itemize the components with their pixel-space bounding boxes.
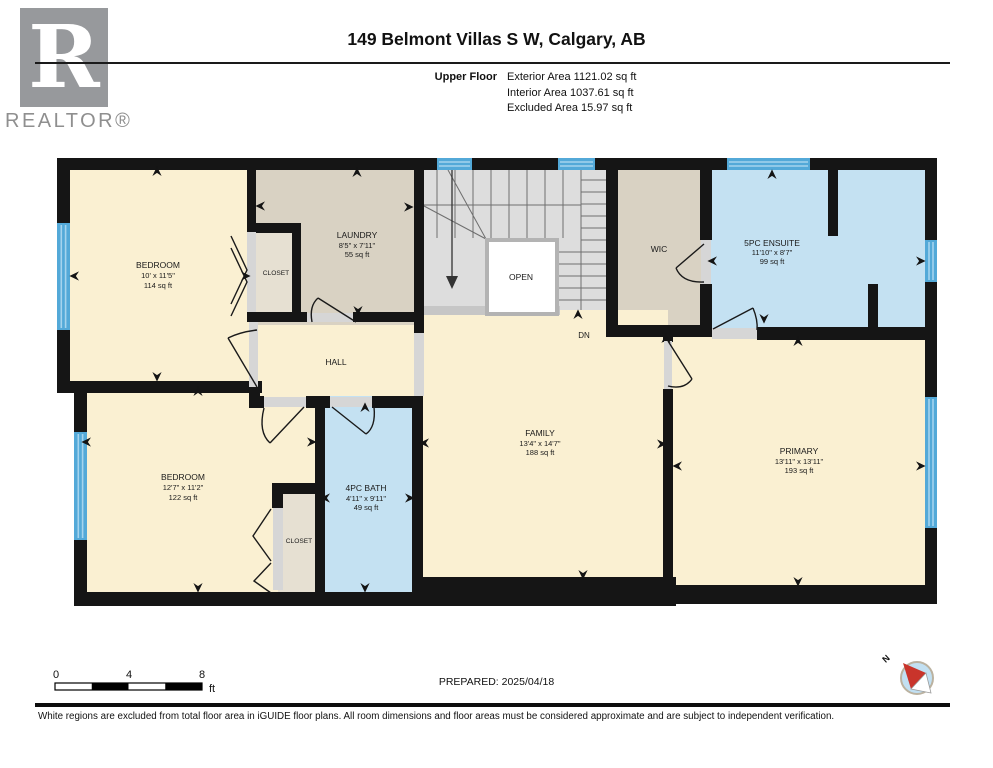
- laundry-area: 55 sq ft: [345, 250, 371, 259]
- open-label: OPEN: [509, 272, 533, 282]
- family-label: FAMILY: [525, 428, 555, 438]
- ensuite-label: 5PC ENSUITE: [744, 238, 800, 248]
- family-dims: 13'4" x 14'7": [519, 439, 560, 448]
- bath-area: 49 sq ft: [354, 503, 380, 512]
- closet-bottom-label: CLOSET: [286, 538, 312, 545]
- header-divider-line: [35, 62, 950, 64]
- bedroom-bottom-area: 122 sq ft: [169, 493, 199, 502]
- bedroom-top-label: BEDROOM: [136, 260, 180, 270]
- page-title: 149 Belmont Villas S W, Calgary, AB: [0, 29, 993, 50]
- laundry-dims: 8'5" x 7'11": [339, 241, 376, 250]
- hall-label: HALL: [325, 357, 347, 367]
- bedroom-top-dims: 10' x 11'5": [141, 271, 175, 280]
- laundry-label: LAUNDRY: [337, 230, 378, 240]
- bedroom-top-area: 114 sq ft: [144, 281, 173, 290]
- bedroom-bottom-label: BEDROOM: [161, 472, 205, 482]
- footer-divider-line: [35, 703, 950, 707]
- down-label: DN: [578, 331, 590, 340]
- prepared-date: PREPARED: 2025/04/18: [0, 676, 993, 688]
- compass-north-label: N: [880, 653, 892, 665]
- disclaimer-text: White regions are excluded from total fl…: [38, 711, 968, 722]
- primary-label: PRIMARY: [780, 446, 819, 456]
- bath-label: 4PC BATH: [346, 483, 387, 493]
- family-area: 188 sq ft: [526, 448, 556, 457]
- ensuite-area: 99 sq ft: [760, 257, 786, 266]
- ensuite-dims: 11'10" x 8'7": [752, 248, 793, 257]
- bedroom-bottom-dims: 12'7" x 11'2": [163, 483, 204, 492]
- primary-area: 193 sq ft: [785, 466, 815, 475]
- closet-top-label: CLOSET: [263, 270, 289, 277]
- wic-label: WIC: [651, 244, 668, 254]
- floor-plan: BEDROOM 10' x 11'5" 114 sq ft LAUNDRY 8'…: [0, 0, 993, 768]
- realtor-logo: R: [20, 8, 108, 107]
- primary-dims: 13'11" x 13'11": [775, 457, 824, 466]
- bath-dims: 4'11" x 9'11": [346, 494, 386, 503]
- room-fills: [62, 163, 930, 598]
- ensuite-room: [706, 163, 930, 330]
